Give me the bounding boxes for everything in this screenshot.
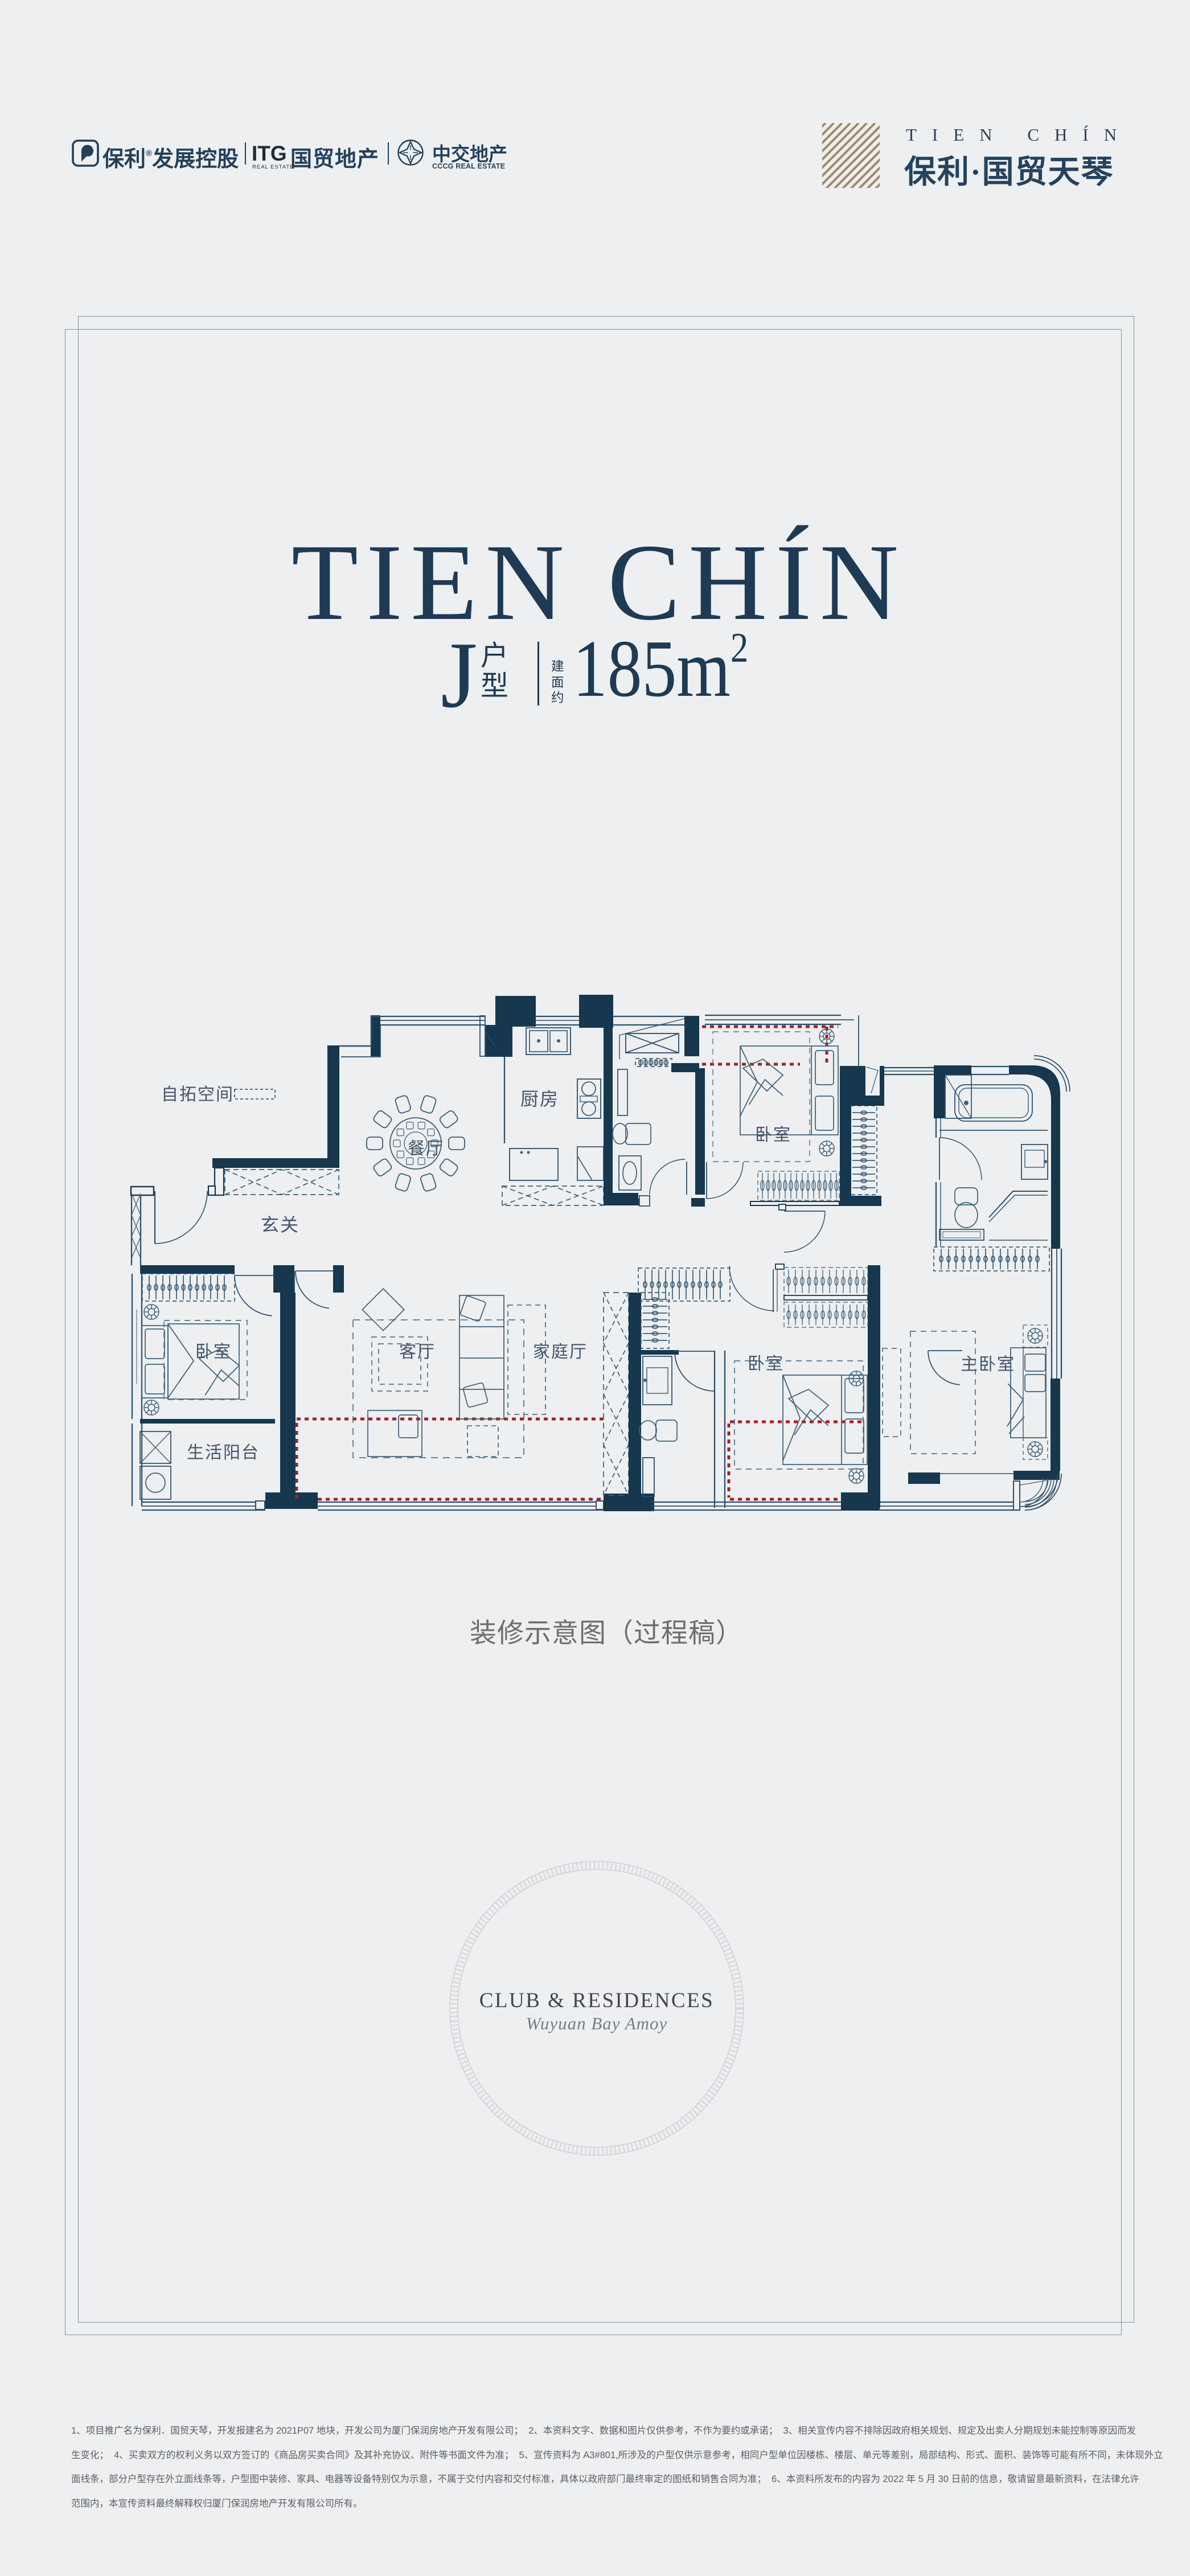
svg-text:餐厅: 餐厅 bbox=[408, 1139, 444, 1158]
svg-text:卧室: 卧室 bbox=[195, 1343, 232, 1361]
svg-text:家庭厅: 家庭厅 bbox=[533, 1343, 588, 1361]
svg-text:ITG: ITG bbox=[252, 142, 287, 165]
svg-text:自拓空间: 自拓空间 bbox=[161, 1085, 234, 1104]
svg-text:客厅: 客厅 bbox=[399, 1343, 436, 1361]
svg-text:REAL ESTATE: REAL ESTATE bbox=[252, 164, 294, 170]
svg-text:生活阳台: 生活阳台 bbox=[187, 1443, 260, 1462]
svg-text:厨房: 厨房 bbox=[520, 1089, 559, 1109]
svg-text:卧室: 卧室 bbox=[755, 1126, 791, 1145]
svg-text:卧室: 卧室 bbox=[748, 1355, 784, 1373]
svg-text:主卧室: 主卧室 bbox=[961, 1355, 1015, 1374]
svg-text:玄关: 玄关 bbox=[261, 1215, 299, 1235]
